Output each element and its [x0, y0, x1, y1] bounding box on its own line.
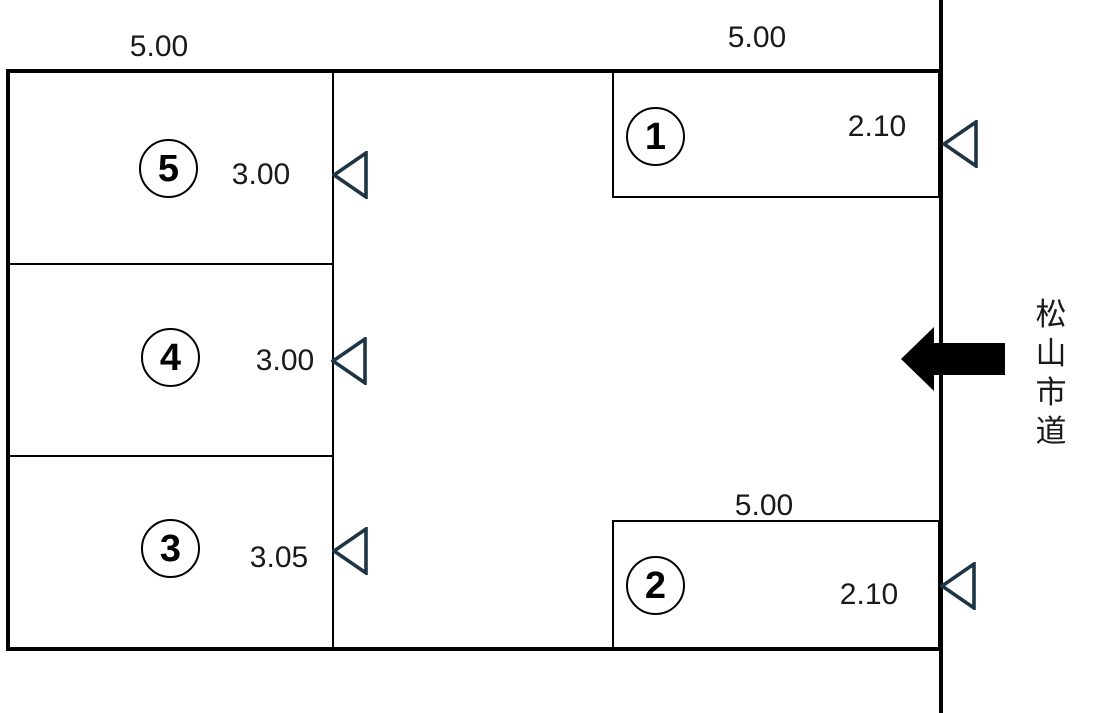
space-number-circle-1: 1: [626, 107, 685, 166]
space-number-1: 1: [645, 118, 666, 156]
space-number-4: 4: [160, 339, 181, 377]
divider-space5-space4: [10, 263, 332, 265]
entry-marker-icon-space-2: [940, 562, 976, 610]
depth-label-space-4: 3.00: [235, 344, 335, 378]
road-name-char-1: 松: [1036, 299, 1067, 331]
entry-marker-icon-space-3: [332, 527, 368, 575]
depth-label-space-5: 3.00: [211, 158, 311, 192]
width-label-space-2: 5.00: [714, 489, 814, 523]
width-label-left-block: 5.00: [109, 30, 209, 64]
width-label-space-1: 5.00: [707, 21, 807, 55]
space-number-circle-4: 4: [141, 328, 200, 387]
road-name-char-3: 市: [1036, 377, 1067, 409]
parking-diagram: 5 4 3 1 2 5.00 5.00 5.00 2.10 2.10 3.00 …: [0, 0, 1102, 713]
space-number-circle-5: 5: [139, 139, 198, 198]
space-number-3: 3: [160, 530, 181, 568]
depth-label-space-1: 2.10: [827, 110, 927, 144]
road-name-char-4: 道: [1036, 416, 1067, 448]
entry-marker-icon-space-5: [332, 151, 368, 199]
road-entrance-arrow-icon: [901, 327, 1005, 391]
space-number-2: 2: [645, 567, 666, 605]
road-name-char-2: 山: [1036, 338, 1067, 370]
road-name-label: 松 山 市 道: [1030, 299, 1072, 448]
depth-label-space-2: 2.10: [819, 578, 919, 612]
space-number-5: 5: [158, 150, 179, 188]
space-number-circle-2: 2: [626, 556, 685, 615]
depth-label-space-3: 3.05: [229, 541, 329, 575]
divider-space4-space3: [10, 455, 332, 457]
entry-marker-icon-space-1: [942, 120, 978, 168]
space-number-circle-3: 3: [141, 519, 200, 578]
entry-marker-icon-space-4: [331, 337, 367, 385]
